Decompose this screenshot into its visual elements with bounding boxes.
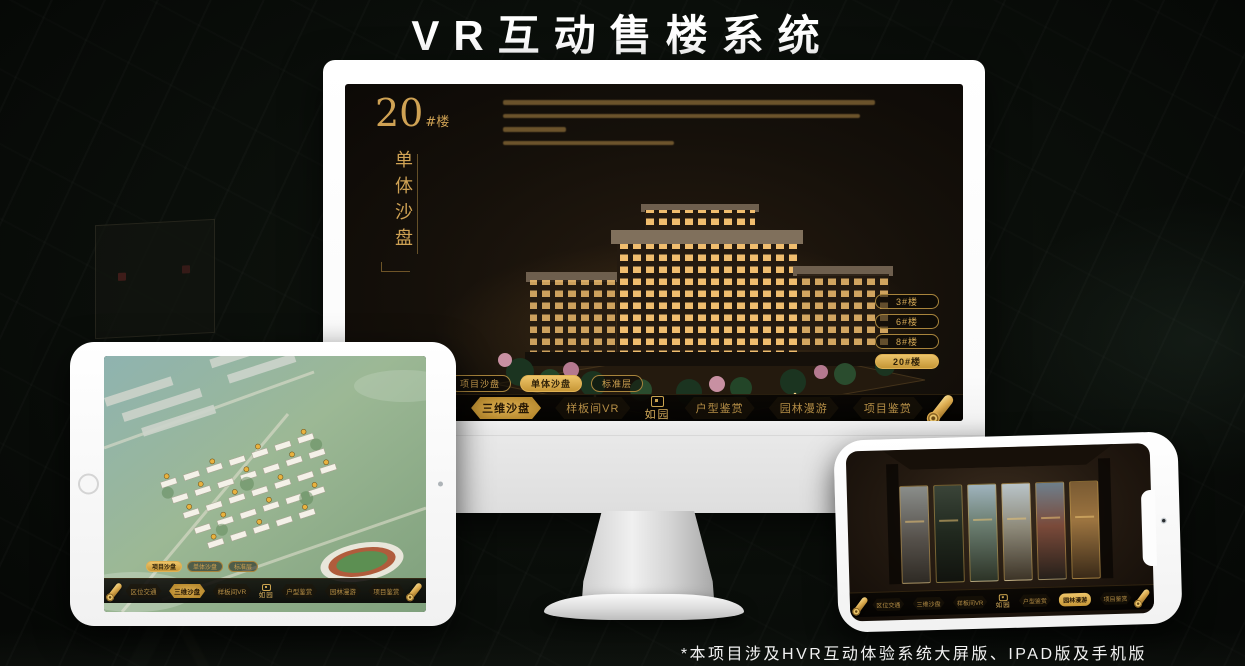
subtab-project-sandbox[interactable]: 项目沙盘	[146, 561, 182, 572]
tablet-screen: 项目沙盘 单体沙盘 标准层 区位交通 三维沙盘 样板间VR 如园 户型鉴赏 园林…	[104, 356, 426, 612]
scene-gallery	[899, 480, 1101, 584]
nav-item-3d-sandbox[interactable]: 三维沙盘	[169, 584, 205, 598]
scroll-icon[interactable]	[107, 582, 123, 600]
phone-notch	[1141, 490, 1157, 566]
subtab-single-sandbox[interactable]: 单体沙盘	[520, 375, 582, 392]
nav-item-model-room-vr[interactable]: 样板间VR	[953, 595, 988, 609]
building-button[interactable]: 6#楼	[875, 314, 939, 329]
seal-icon	[262, 584, 271, 591]
block-divider-line	[417, 154, 418, 254]
nav-item-3d-sandbox[interactable]: 三维沙盘	[912, 596, 944, 610]
gallery-panel[interactable]	[1035, 481, 1067, 580]
nav-item-project-view[interactable]: 项目鉴赏	[368, 584, 404, 598]
gallery-panel[interactable]	[933, 484, 965, 583]
page-title: VR互动售楼系统	[0, 2, 1245, 63]
gallery-panel[interactable]	[1001, 482, 1033, 581]
camera-dot	[1161, 518, 1167, 524]
subtab-standard-floor[interactable]: 标准层	[228, 561, 258, 572]
tablet-nav-bar: 区位交通 三维沙盘 样板间VR 如园 户型鉴赏 园林漫游 项目鉴赏	[104, 578, 426, 603]
scroll-icon[interactable]	[1135, 588, 1151, 606]
nav-item-3d-sandbox[interactable]: 三维沙盘	[471, 397, 541, 419]
nav-item-floorplan[interactable]: 户型鉴赏	[281, 584, 317, 598]
building-button-selected[interactable]: 20#楼	[875, 354, 939, 369]
building-button[interactable]: 3#楼	[875, 294, 939, 309]
block-corner-ornament	[381, 262, 410, 272]
nav-item-garden-roam[interactable]: 园林漫游	[1059, 592, 1091, 606]
subtab-standard-floor[interactable]: 标准层	[591, 375, 643, 392]
monitor-stand-neck	[582, 511, 714, 599]
brand-logo: 如园	[995, 594, 1010, 609]
nav-item-model-room-vr[interactable]: 样板间VR	[555, 397, 630, 419]
nav-item-garden-roam[interactable]: 园林漫游	[769, 397, 839, 419]
footnote: *本项目涉及HVR互动体验系统大屏版、IPAD版及手机版	[681, 640, 1147, 664]
block-title: 20#楼	[375, 94, 449, 132]
nav-item-floorplan[interactable]: 户型鉴赏	[685, 397, 755, 419]
brand-logo-text: 如园	[996, 602, 1011, 609]
tablet-subtabs: 项目沙盘 单体沙盘 标准层	[146, 561, 258, 572]
brand-logo: 如园	[645, 396, 671, 420]
subtab-project-sandbox[interactable]: 项目沙盘	[449, 375, 511, 392]
seal-icon	[651, 396, 664, 407]
brand-logo: 如园	[259, 584, 274, 599]
nav-item-location[interactable]: 区位交通	[126, 584, 162, 598]
brand-logo-text: 如园	[259, 592, 274, 599]
monitor-stand-base	[544, 594, 744, 620]
nav-item-floorplan[interactable]: 户型鉴赏	[1019, 593, 1051, 607]
nav-item-project-view[interactable]: 项目鉴赏	[1099, 591, 1131, 605]
block-subtitle-vertical: 单体沙盘	[389, 150, 415, 254]
aerial-render	[104, 356, 426, 612]
block-suffix: #楼	[425, 115, 449, 130]
scroll-icon[interactable]	[407, 582, 423, 600]
subtab-single-sandbox[interactable]: 单体沙盘	[187, 561, 223, 572]
building-button-group: 3#楼 6#楼 8#楼 20#楼	[875, 294, 939, 374]
phone-screen: 区位交通 三维沙盘 样板间VR 如园 户型鉴赏 园林漫游 项目鉴赏	[846, 443, 1155, 621]
interior-pillar	[1098, 458, 1113, 578]
brand-logo-text: 如园	[645, 409, 671, 420]
seal-icon	[998, 594, 1007, 601]
nav-item-model-room-vr[interactable]: 样板间VR	[213, 584, 252, 598]
stage: VR互动售楼系统	[0, 0, 1245, 666]
monitor-subtabs: 项目沙盘 单体沙盘 标准层	[449, 375, 643, 392]
nav-item-project-view[interactable]: 项目鉴赏	[853, 397, 923, 419]
phone-nav-bar: 区位交通 三维沙盘 样板间VR 如园 户型鉴赏 园林漫游 项目鉴赏	[850, 584, 1155, 617]
description-lines	[503, 100, 875, 154]
building-button[interactable]: 8#楼	[875, 334, 939, 349]
scroll-icon[interactable]	[929, 393, 955, 421]
gallery-panel[interactable]	[1069, 480, 1101, 579]
home-button[interactable]	[78, 474, 99, 495]
interior-ceiling	[882, 444, 1113, 470]
tablet-frame: 项目沙盘 单体沙盘 标准层 区位交通 三维沙盘 样板间VR 如园 户型鉴赏 园林…	[70, 342, 456, 626]
block-number: 20	[375, 91, 423, 135]
nav-item-garden-roam[interactable]: 园林漫游	[325, 584, 361, 598]
background-plaque	[95, 219, 215, 339]
interior-pillar	[886, 464, 901, 584]
nav-item-location[interactable]: 区位交通	[872, 597, 904, 611]
camera-dot	[438, 482, 443, 487]
gallery-panel[interactable]	[899, 485, 931, 584]
phone-frame: 区位交通 三维沙盘 样板间VR 如园 户型鉴赏 园林漫游 项目鉴赏	[833, 431, 1182, 633]
scroll-icon[interactable]	[853, 596, 869, 614]
gallery-panel[interactable]	[967, 483, 999, 582]
